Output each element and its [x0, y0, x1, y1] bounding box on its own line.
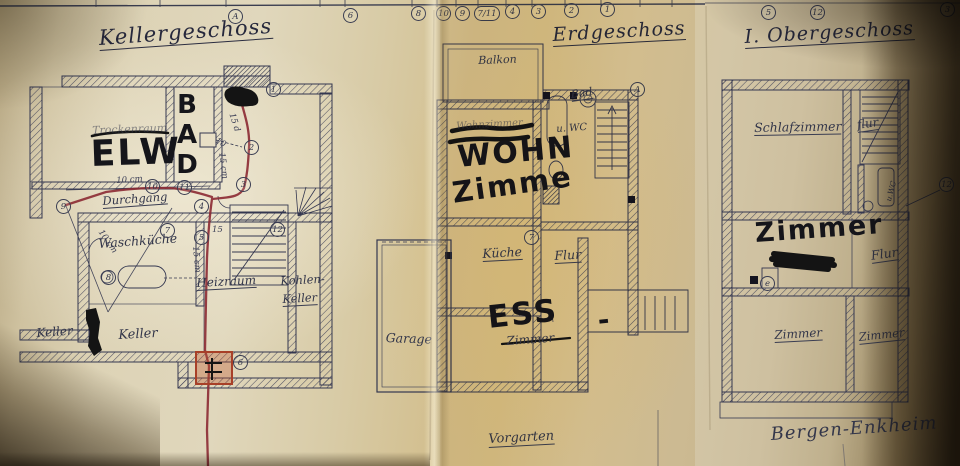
circled-marker-k6: 6: [233, 355, 248, 370]
room-label-flur-eg: Flur: [554, 247, 582, 264]
circled-marker-k1: 1: [266, 82, 281, 97]
circled-marker-top-5: 5: [761, 5, 776, 20]
circled-marker-top-1: 1: [600, 2, 615, 17]
circled-marker-k4: 4: [194, 199, 209, 214]
circled-marker-k9: 9: [56, 199, 71, 214]
room-label-balkon: Balkon: [478, 53, 517, 67]
room-label-kohlen: Kohlen-: [280, 272, 325, 288]
circled-marker-k7: 7: [160, 223, 175, 238]
room-label-keller-left: Keller: [36, 323, 73, 339]
room-label-flur-og-top: flur: [856, 115, 879, 133]
room-label-garage: Garage: [385, 330, 432, 347]
handwritten-ess: ESS: [486, 293, 560, 336]
circled-marker-top-9: 9: [455, 6, 470, 21]
handwritten-elw: ELW: [90, 131, 182, 175]
circled-marker-k3: 3: [236, 177, 251, 192]
circled-marker-k10: 10: [145, 179, 160, 194]
circled-marker-k2: 2: [244, 140, 259, 155]
circled-marker-top-4: 4: [505, 4, 520, 19]
circled-marker-top-10: 10: [436, 6, 451, 21]
circled-marker-eg-a: A: [630, 82, 645, 97]
circled-marker-top-12: 12: [810, 5, 825, 20]
circled-marker-top-2: 2: [564, 3, 579, 18]
circled-marker-k11: 11: [177, 180, 192, 195]
room-label-bad: Bad: [570, 85, 593, 102]
room-label-zimmer-bl: Zimmer: [774, 325, 823, 342]
room-label-schlafzimmer: Schlafzimmer: [754, 118, 842, 136]
circled-marker-og-12: 12: [939, 177, 954, 192]
measurement-15: 15: [212, 225, 223, 235]
circled-marker-top-8: 8: [411, 6, 426, 21]
circled-marker-eg-7: 7: [524, 230, 539, 245]
room-label-keller-mid: Keller: [118, 326, 158, 343]
scanned-floorplan-sheet: Kellergeschoss Erdgeschoss I. Obergescho…: [0, 0, 960, 466]
room-label-kohlen-keller: Keller: [282, 290, 317, 307]
circled-marker-og-e: e: [760, 276, 775, 291]
room-label-heizraum: Heizraum: [196, 273, 256, 291]
red-marked-box: [196, 352, 232, 384]
measurement-10cm-a: 10 cm: [116, 174, 143, 186]
circled-marker-top-a: A: [228, 9, 243, 24]
circled-marker-top-6: 6: [343, 8, 358, 23]
circled-marker-top-right: 3: [940, 2, 955, 17]
room-label-kueche: Küche: [482, 244, 522, 262]
circled-marker-top-7-11: 7/11: [474, 6, 500, 21]
circled-marker-top-3: 3: [531, 4, 546, 19]
circled-marker-k5: 5: [194, 230, 209, 245]
circled-marker-k8: 8: [101, 270, 116, 285]
circled-marker-k12: 12: [270, 222, 285, 237]
handwritten-bad: BAD: [174, 90, 200, 190]
